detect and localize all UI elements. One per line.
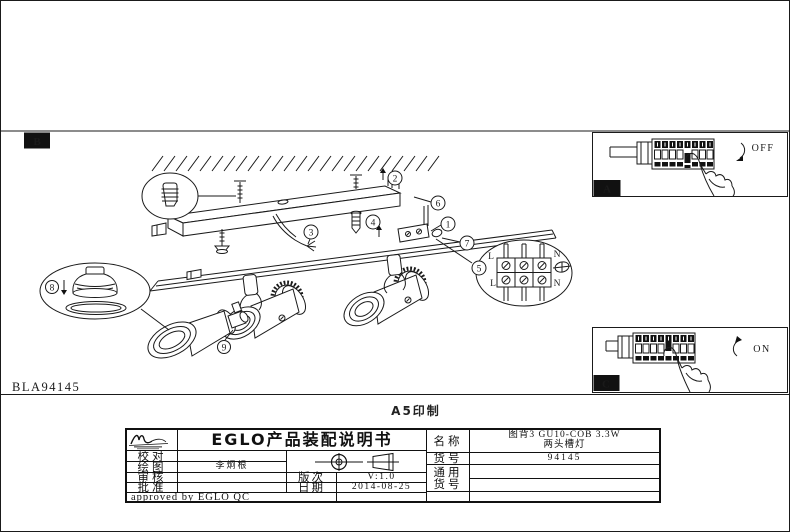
callout-4: 4 — [371, 219, 376, 229]
callout-6: 6 — [436, 200, 441, 210]
name-label: 名称 — [427, 430, 470, 453]
breaker-switch-off — [685, 153, 691, 163]
retaining-ring — [66, 302, 126, 315]
breaker-switch-on — [666, 341, 672, 351]
item-label: 货号 — [427, 453, 470, 465]
spotlight-right — [338, 254, 433, 333]
inset-terminal-detail: L N L N — [436, 239, 572, 306]
callout-1: 1 — [446, 221, 451, 231]
title-block: EGLO产品装配说明书 校对 绘图 李炯根 审核 批准 版次 V:1.0 日期 … — [125, 428, 661, 503]
leader-line — [141, 309, 169, 330]
callout-8: 8 — [50, 284, 55, 294]
name-value: 图背3 GU10-COB 3.3W 两头槽灯 — [470, 430, 659, 453]
approved-stamp: approved by EGLO QC — [127, 493, 337, 501]
sheet-title: EGLO产品装配说明书 — [178, 430, 427, 451]
date-label: 日期 — [287, 483, 337, 493]
inset-bulb-detail — [40, 263, 169, 330]
switch-off-box: OFF A — [593, 133, 788, 197]
svg-text:B: B — [33, 136, 41, 148]
panel-label-a: A — [594, 180, 621, 196]
eglo-logo — [127, 430, 173, 450]
date-value: 2014-08-25 — [337, 483, 427, 493]
pivot-knob — [387, 254, 402, 275]
callout-5: 5 — [477, 265, 482, 275]
terminal-label-l-bottom: L — [490, 279, 496, 289]
switch-on-box: ON C — [593, 328, 788, 393]
eglo-logo-cell — [127, 430, 178, 451]
spotlight-center — [216, 274, 310, 346]
breaker-panel-on — [606, 333, 695, 363]
draw-value: 李炯根 — [178, 462, 287, 473]
callout-7: 7 — [465, 240, 470, 250]
pivot-knob — [243, 274, 258, 295]
callout-9: 9 — [222, 344, 227, 354]
drawing-code: BLA94145 — [12, 380, 80, 394]
ceiling-hatch — [152, 156, 439, 171]
print-size-label: A5印制 — [370, 402, 462, 419]
end-connector — [398, 205, 443, 242]
general-value-row2 — [470, 479, 659, 493]
bottom-empty-label-cell — [427, 492, 470, 501]
instruction-sheet: B — [0, 0, 790, 532]
general-item-label: 通用 货号 — [427, 465, 470, 492]
svg-text:A: A — [603, 184, 611, 196]
panel-label-c: C — [594, 375, 620, 391]
svg-text:C: C — [602, 379, 610, 391]
approved-empty-cell — [337, 493, 427, 501]
item-value: 94145 — [470, 453, 659, 465]
terminal-label-n-bottom: N — [554, 279, 561, 289]
review-value — [178, 473, 287, 483]
terminal-label-l-top: L — [488, 252, 494, 262]
callout-2: 2 — [393, 175, 398, 185]
terminal-label-n-top: N — [554, 250, 561, 260]
name-line2: 两头槽灯 — [543, 441, 585, 451]
on-text: ON — [753, 344, 770, 355]
step-label-b: B — [24, 133, 50, 149]
off-text: OFF — [752, 143, 775, 154]
bottom-empty-value-cell — [470, 492, 659, 501]
general-value-row1 — [470, 465, 659, 479]
callout-3: 3 — [309, 229, 314, 239]
